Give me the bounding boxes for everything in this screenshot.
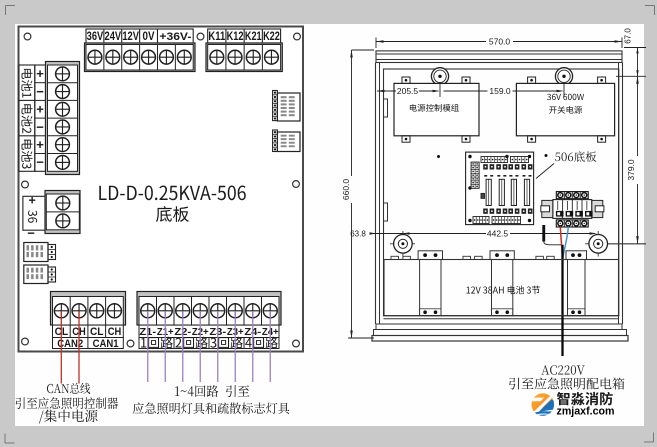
svg-text:−: − bbox=[36, 155, 44, 170]
svg-text:442.5: 442.5 bbox=[487, 228, 509, 238]
svg-text:660.0: 660.0 bbox=[341, 179, 351, 201]
svg-text:CAN1: CAN1 bbox=[93, 338, 119, 350]
svg-text:+: + bbox=[36, 137, 44, 152]
svg-text:−: − bbox=[36, 119, 44, 134]
svg-text:12V: 12V bbox=[122, 31, 139, 43]
svg-text:379.0: 379.0 bbox=[626, 159, 636, 181]
svg-text:0V: 0V bbox=[143, 31, 155, 43]
svg-text:+: + bbox=[36, 66, 44, 81]
svg-text:+36V-: +36V- bbox=[159, 31, 191, 43]
svg-text:36V: 36V bbox=[87, 31, 104, 43]
svg-text:K12: K12 bbox=[227, 31, 244, 43]
svg-text:K11: K11 bbox=[208, 31, 225, 43]
svg-text:zmjaxf.com: zmjaxf.com bbox=[557, 406, 615, 418]
svg-text:570.0: 570.0 bbox=[489, 36, 511, 46]
svg-text:159.0: 159.0 bbox=[489, 86, 511, 96]
svg-text:CL: CL bbox=[90, 326, 104, 338]
svg-text:67.0: 67.0 bbox=[624, 28, 633, 44]
svg-text:24V: 24V bbox=[105, 31, 122, 43]
svg-text:K22: K22 bbox=[263, 31, 280, 43]
svg-text:+: + bbox=[36, 102, 44, 117]
svg-text:K21: K21 bbox=[245, 31, 262, 43]
svg-text:−: − bbox=[36, 84, 44, 99]
svg-text:CH: CH bbox=[108, 326, 122, 338]
svg-text:205.5: 205.5 bbox=[397, 86, 419, 96]
svg-text:+: + bbox=[29, 194, 36, 208]
svg-text:−: − bbox=[27, 226, 35, 241]
svg-text:63.8: 63.8 bbox=[350, 229, 366, 238]
